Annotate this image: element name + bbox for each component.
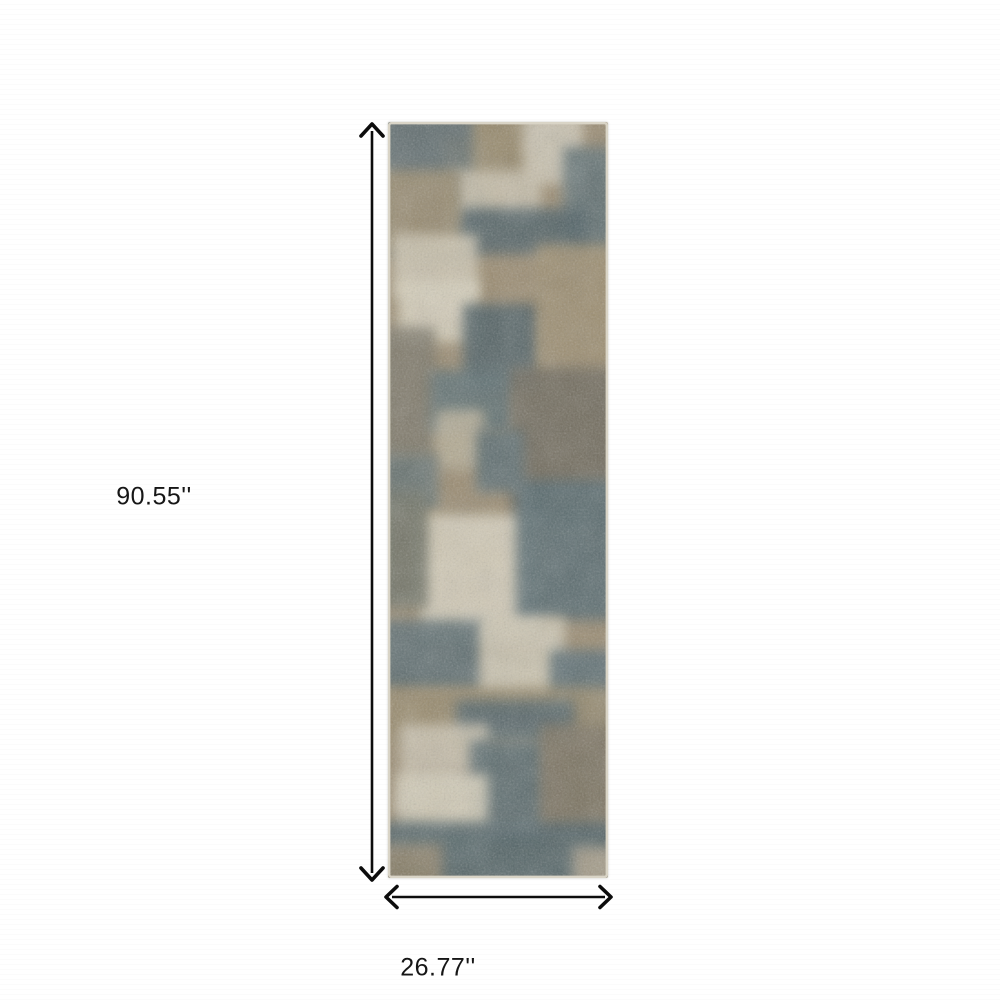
height-arrow: [361, 124, 383, 880]
arrow-up-icon: [361, 124, 383, 136]
product-dimension-image: 90.55'' 26.77'': [0, 0, 1000, 1000]
arrow-down-icon: [361, 868, 383, 880]
height-label: 90.55'': [116, 483, 192, 512]
arrow-left-icon: [386, 887, 397, 908]
width-label: 26.77'': [400, 954, 476, 983]
rug-image: [388, 122, 608, 878]
arrow-right-icon: [600, 887, 611, 908]
width-arrow: [386, 887, 611, 908]
